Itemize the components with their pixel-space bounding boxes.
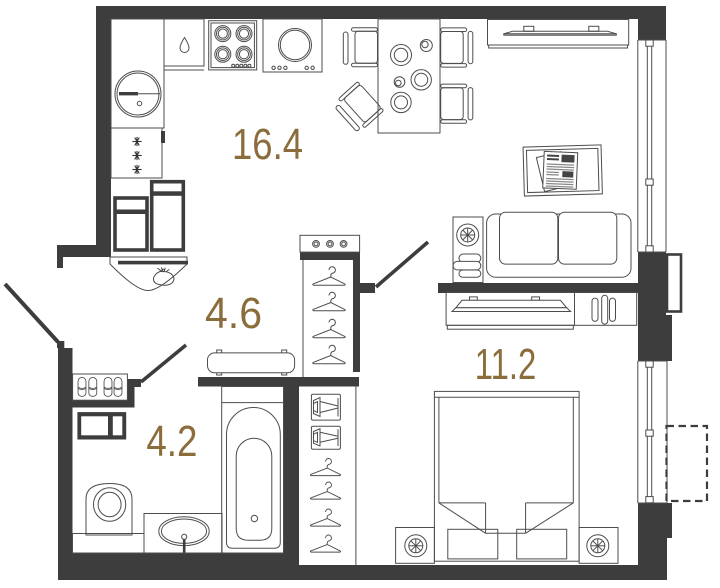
svg-text:16.4: 16.4 bbox=[232, 120, 303, 169]
svg-text:4.2: 4.2 bbox=[146, 417, 197, 466]
svg-text:11.2: 11.2 bbox=[475, 340, 537, 389]
svg-text:4.6: 4.6 bbox=[205, 289, 262, 338]
